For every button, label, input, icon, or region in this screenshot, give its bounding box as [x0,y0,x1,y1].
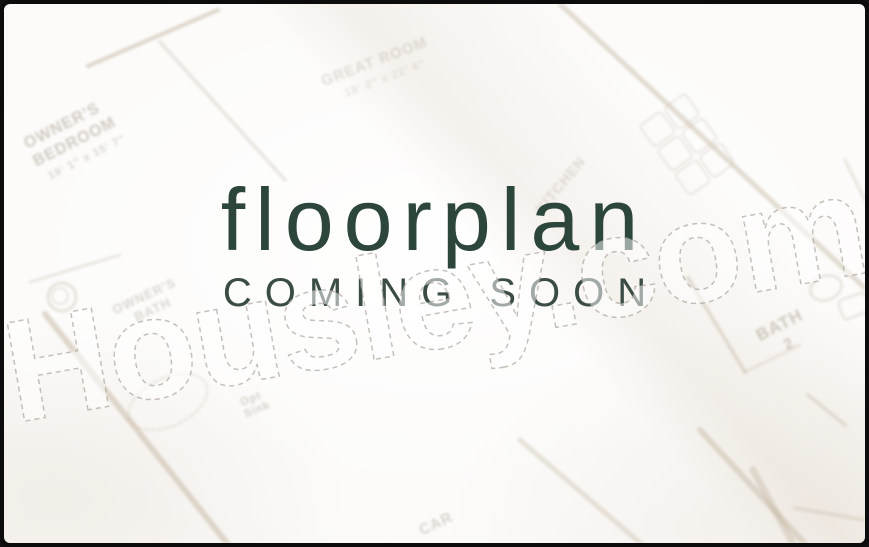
kitchen-label: KITCHEN [532,153,589,216]
wall-line [45,314,230,543]
wall-line [88,10,218,66]
wall-line [795,508,865,520]
floorplan-drawing: OWNER'S BEDROOM 19' 1" x 15' 7" GREAT RO… [4,4,865,543]
room-label-text: KITCHEN [532,153,589,216]
room-label-text: CAR [416,509,455,539]
opt-sink-label: Opt Sink [238,388,272,420]
wall-line [753,470,795,543]
wall-line [688,278,745,372]
wall-line [30,255,120,282]
cabinet-grid [639,93,735,195]
wall-line [160,42,285,180]
vanity-fixture [837,292,865,320]
room-label-text: 2 [781,334,797,353]
wall-line [700,430,808,543]
garage-label: CAR [416,509,455,539]
wall-line [560,4,865,302]
wall-line [520,440,645,543]
great-room-label: GREAT ROOM 19' 2" x 22' 6" [319,34,436,106]
wall-line [808,395,845,425]
placeholder-image-frame: OWNER'S BEDROOM 19' 1" x 15' 7" GREAT RO… [0,0,869,547]
wall-line [845,160,865,230]
owners-bedroom-label: OWNER'S BEDROOM 19' 1" x 15' 7" [21,95,128,185]
owners-bath-label: OWNER'S BATH [110,275,185,332]
sink-fixture [52,288,68,304]
room-label-text: BATH [753,305,806,345]
